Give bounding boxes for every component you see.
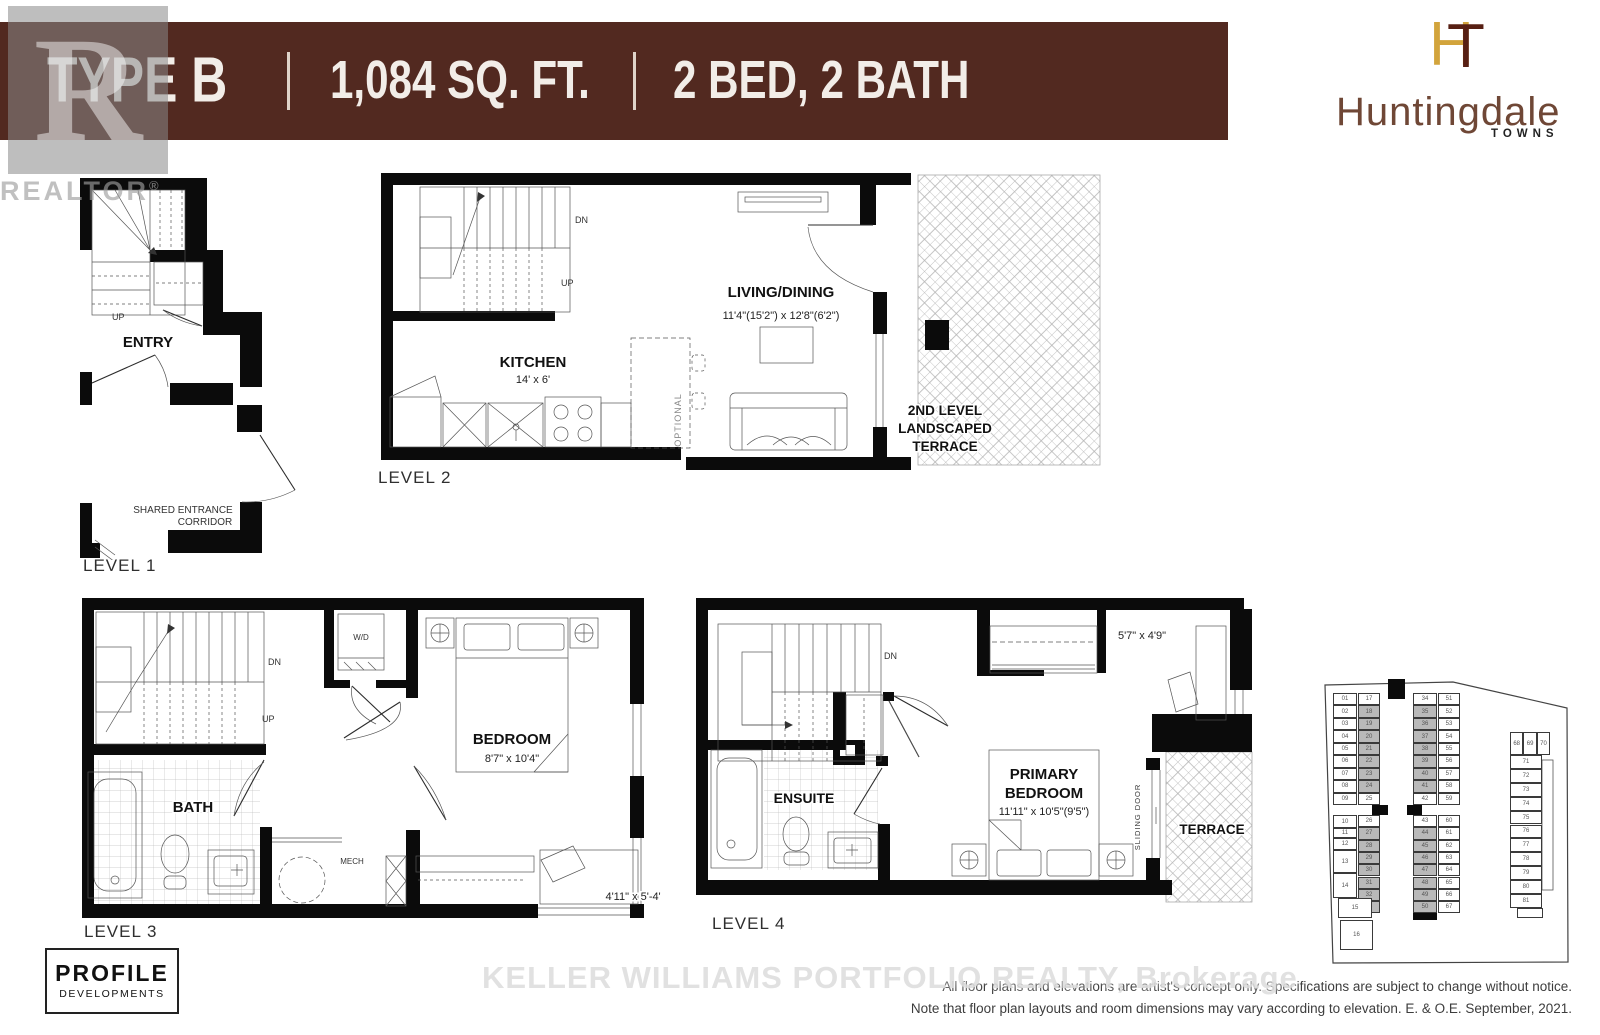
- level3-up-label: UP: [262, 714, 275, 724]
- siteplan-unit-63: 63: [1438, 852, 1460, 864]
- siteplan-unit-30: 30: [1358, 864, 1380, 876]
- level4-sliding-door-label: SLIDING DOOR: [1133, 784, 1142, 851]
- siteplan-unit-08: 08: [1333, 780, 1357, 792]
- siteplan-unit-34: 34: [1413, 693, 1437, 705]
- banner-divider: [287, 52, 290, 110]
- svg-text:14' x 6': 14' x 6': [516, 374, 550, 386]
- siteplan-unit-45: 45: [1413, 840, 1437, 852]
- siteplan-unit-66: 66: [1438, 889, 1460, 901]
- siteplan-unit-23: 23: [1358, 768, 1380, 780]
- title-banner: TYPE B 1,084 SQ. FT. 2 BED, 2 BATH: [0, 22, 1228, 140]
- developer-logo: PROFILE DEVELOPMENTS: [45, 948, 179, 1014]
- level3-bedroom-label: BEDROOM: [473, 731, 551, 748]
- level2-walls: [381, 173, 949, 470]
- svg-text:CORRIDOR: CORRIDOR: [178, 517, 232, 528]
- svg-text:TERRACE: TERRACE: [912, 439, 977, 454]
- siteplan-unit-68: 68: [1510, 732, 1523, 755]
- level4-desk: [1168, 626, 1226, 720]
- siteplan-unit-36: 36: [1413, 718, 1437, 730]
- brokerage-watermark: KELLER WILLIAMS PORTFOLIO REALTY, Broker…: [482, 960, 1298, 996]
- siteplan: 0102030405060708091718192021222324253435…: [1290, 665, 1580, 975]
- siteplan-unit-29: 29: [1358, 852, 1380, 864]
- level3-dn-label: DN: [268, 657, 281, 667]
- area-label: 1,084 SQ. FT.: [330, 53, 590, 107]
- level3-bed: [426, 618, 598, 772]
- siteplan-unit-07: 07: [1333, 768, 1357, 780]
- siteplan-unit-37: 37: [1413, 730, 1437, 742]
- siteplan-unit-38: 38: [1413, 743, 1437, 755]
- siteplan-unit-15: 15: [1338, 898, 1372, 918]
- siteplan-unit-48: 48: [1413, 877, 1437, 889]
- level3-floorplan: DN UP W/D BATH MECH BEDROOM 8'7" x 10'4"…: [76, 592, 661, 937]
- siteplan-unit-56: 56: [1438, 755, 1460, 767]
- level2-title: LEVEL 2: [378, 468, 451, 488]
- siteplan-unit-31: 31: [1358, 877, 1380, 889]
- siteplan-unit-24: 24: [1358, 780, 1380, 792]
- siteplan-unit-22: 22: [1358, 755, 1380, 767]
- siteplan-unit-01: 01: [1333, 693, 1357, 705]
- svg-text:2ND LEVEL: 2ND LEVEL: [908, 403, 982, 418]
- level2-terrace-door: [808, 225, 873, 292]
- level4-floorplan: DN 5'7" x 4'9" ENSUITE PRIMARY BEDROOM 1…: [690, 592, 1255, 912]
- siteplan-unit-77: 77: [1510, 838, 1542, 852]
- siteplan-unit-09: 09: [1333, 793, 1357, 805]
- siteplan-unit-12: 12: [1333, 838, 1357, 850]
- siteplan-unit-79: 79: [1510, 866, 1542, 880]
- siteplan-unit-71: 71: [1510, 755, 1542, 769]
- siteplan-entrance: [1407, 805, 1422, 815]
- level4-primary-label: PRIMARY: [1010, 766, 1079, 783]
- level3-desk-dim: 4'11" x 5'-4": [605, 891, 661, 903]
- level1-floorplan: UP ENTRY SHARED ENTRANCE CORRIDOR: [70, 165, 305, 560]
- siteplan-unit-43: 43: [1413, 815, 1437, 827]
- siteplan-unit-59: 59: [1438, 793, 1460, 805]
- siteplan-unit-62: 62: [1438, 840, 1460, 852]
- developer-sub: DEVELOPMENTS: [59, 988, 165, 1000]
- level2-optional-label: OPTIONAL: [673, 393, 683, 447]
- level4-title: LEVEL 4: [712, 914, 785, 934]
- siteplan-unit-25: 25: [1358, 793, 1380, 805]
- siteplan-unit-40: 40: [1413, 768, 1437, 780]
- level4-terrace-label: TERRACE: [1179, 822, 1244, 837]
- level2-dn-label: DN: [575, 215, 588, 225]
- level3-mech-label: MECH: [340, 857, 364, 866]
- siteplan-unit-58: 58: [1438, 780, 1460, 792]
- siteplan-unit-14: 14: [1333, 873, 1357, 898]
- realtor-watermark: REALTOR®: [0, 176, 162, 207]
- siteplan-unit-51: 51: [1438, 693, 1460, 705]
- level3-wd-label: W/D: [353, 633, 369, 642]
- siteplan-unit-05: 05: [1333, 743, 1357, 755]
- level2-up-label: UP: [561, 278, 574, 288]
- siteplan-unit-16: 16: [1340, 920, 1373, 950]
- siteplan-unit-54: 54: [1438, 730, 1460, 742]
- banner-divider: [633, 52, 636, 110]
- siteplan-unit-20: 20: [1358, 730, 1380, 742]
- siteplan-unit-57: 57: [1438, 768, 1460, 780]
- siteplan-unit-13: 13: [1333, 850, 1357, 873]
- siteplan-unit-55: 55: [1438, 743, 1460, 755]
- level3-bath-floor: [94, 760, 260, 904]
- siteplan-unit-18: 18: [1358, 705, 1380, 717]
- level1-up-label: UP: [112, 312, 125, 322]
- siteplan-unit-78: 78: [1510, 852, 1542, 866]
- realtor-logo-watermark: R: [8, 6, 168, 174]
- siteplan-unit-65: 65: [1438, 877, 1460, 889]
- siteplan-unit-41: 41: [1413, 780, 1437, 792]
- siteplan-unit-67: 67: [1438, 901, 1460, 913]
- svg-text:8'7" x 10'4": 8'7" x 10'4": [485, 753, 539, 765]
- level1-entry-door: [92, 355, 168, 387]
- siteplan-unit-11: 11: [1333, 828, 1357, 838]
- siteplan-unit-53: 53: [1438, 718, 1460, 730]
- realtor-r-letter: R: [34, 4, 142, 176]
- siteplan-unit-27: 27: [1358, 827, 1380, 839]
- level3-doors: [344, 702, 446, 820]
- brand-tagline: TOWNS: [1491, 128, 1559, 140]
- siteplan-unit-64: 64: [1438, 864, 1460, 876]
- siteplan-unit-02: 02: [1333, 705, 1357, 717]
- floorplan-sheet: TYPE B 1,084 SQ. FT. 2 BED, 2 BATH H T H…: [0, 0, 1600, 1035]
- siteplan-unit-49: 49: [1413, 889, 1437, 901]
- siteplan-unit-35: 35: [1413, 705, 1437, 717]
- svg-text:11'4"(15'2") x 12'8"(6'2"): 11'4"(15'2") x 12'8"(6'2"): [723, 310, 840, 322]
- developer-name: PROFILE: [55, 962, 169, 985]
- siteplan-unit-74: 74: [1510, 797, 1542, 811]
- siteplan-unit-28: 28: [1358, 840, 1380, 852]
- siteplan-unit-47: 47: [1413, 864, 1437, 876]
- siteplan-unit-03: 03: [1333, 718, 1357, 730]
- siteplan-unit-: [1517, 908, 1543, 918]
- level2-floorplan: DN UP KITCHEN 14' x 6' LIVING/DINING 11'…: [373, 165, 1108, 470]
- siteplan-unit-60: 60: [1438, 815, 1460, 827]
- siteplan-unit-44: 44: [1413, 827, 1437, 839]
- siteplan-unit-81: 81: [1510, 894, 1542, 908]
- siteplan-unit-73: 73: [1510, 783, 1542, 797]
- level4-ensuite-floor: [764, 750, 878, 870]
- siteplan-entrance: [1388, 679, 1405, 699]
- siteplan-unit-52: 52: [1438, 705, 1460, 717]
- bed-bath-label: 2 BED, 2 BATH: [673, 53, 969, 107]
- level3-bath-label: BATH: [173, 799, 214, 816]
- level3-mech: [272, 838, 406, 906]
- level3-laundry-closet: [338, 614, 390, 724]
- siteplan-unit-50: 50: [1413, 901, 1437, 913]
- level3-stairs: [96, 612, 264, 744]
- siteplan-unit-72: 72: [1510, 769, 1542, 783]
- svg-text:BEDROOM: BEDROOM: [1005, 785, 1083, 802]
- siteplan-unit-70: 70: [1537, 732, 1550, 755]
- level4-ensuite-label: ENSUITE: [774, 790, 835, 806]
- svg-text:LANDSCAPED: LANDSCAPED: [898, 421, 992, 436]
- level2-living-label: LIVING/DINING: [728, 284, 835, 301]
- siteplan-unit-69: 69: [1523, 732, 1536, 755]
- level1-title: LEVEL 1: [83, 556, 156, 576]
- siteplan-unit-17: 17: [1358, 693, 1380, 705]
- siteplan-entrance: [1372, 805, 1388, 815]
- siteplan-unit-19: 19: [1358, 718, 1380, 730]
- siteplan-unit-46: 46: [1413, 852, 1437, 864]
- level2-kitchen-label: KITCHEN: [500, 354, 567, 371]
- siteplan-unit-10: 10: [1333, 815, 1357, 828]
- level1-closet: [154, 262, 203, 326]
- level1-entry-label: ENTRY: [123, 334, 173, 351]
- siteplan-unit-06: 06: [1333, 755, 1357, 767]
- siteplan-unit-26: 26: [1358, 815, 1380, 827]
- siteplan-unit-04: 04: [1333, 730, 1357, 742]
- logo-monogram-t: T: [1447, 16, 1485, 78]
- svg-text:11'11" x 10'5"(9'5"): 11'11" x 10'5"(9'5"): [999, 806, 1089, 818]
- level4-closet-dim: 5'7" x 4'9": [1118, 630, 1166, 642]
- siteplan-unit-75: 75: [1510, 811, 1542, 825]
- level4-closet: [990, 626, 1097, 673]
- siteplan-unit-42: 42: [1413, 793, 1437, 805]
- level2-couch: [730, 393, 847, 450]
- siteplan-unit-76: 76: [1510, 825, 1542, 839]
- level3-title: LEVEL 3: [84, 922, 157, 942]
- siteplan-unit-21: 21: [1358, 743, 1380, 755]
- siteplan-unit-80: 80: [1510, 880, 1542, 894]
- level4-dn-label: DN: [884, 651, 897, 661]
- level1-corridor-label: SHARED ENTRANCE: [133, 505, 233, 516]
- siteplan-unit-39: 39: [1413, 755, 1437, 767]
- level2-stairs: [420, 187, 570, 312]
- siteplan-unit-61: 61: [1438, 827, 1460, 839]
